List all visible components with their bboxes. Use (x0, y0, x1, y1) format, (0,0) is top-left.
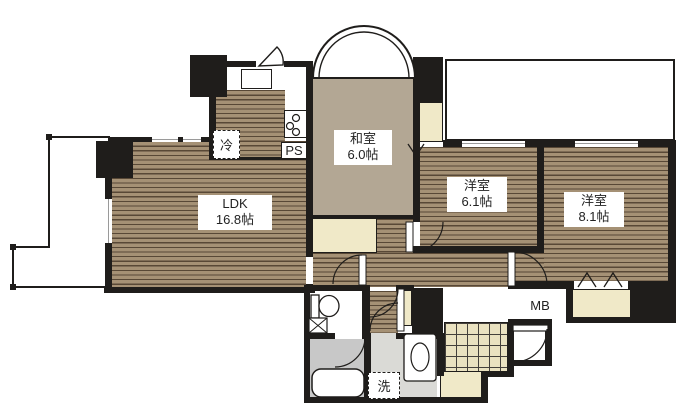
door-arc (413, 222, 443, 252)
door-leaf (508, 252, 515, 286)
burner-icon (293, 115, 300, 122)
folding-door-icon (408, 144, 424, 156)
door-leaf (397, 289, 404, 331)
toilet-bowl (319, 296, 339, 317)
door-arc (514, 252, 547, 285)
plan-overlay (0, 0, 685, 413)
folding-door-icon (604, 273, 622, 287)
bathtub (312, 369, 364, 397)
folding-door-icon (578, 273, 596, 287)
balcony-post (10, 284, 16, 290)
balcony-top-left (13, 137, 110, 287)
balcony-post (46, 134, 52, 140)
vanity (404, 334, 436, 381)
door-leaf (359, 255, 366, 285)
door-leaf (406, 222, 413, 252)
burner-icon (293, 129, 300, 136)
entry-door-leaf (513, 325, 548, 331)
door-arc (370, 303, 398, 331)
bay-window-outer (313, 26, 415, 78)
door-arc (335, 337, 365, 367)
floor-plan: 冷 PS MB 洗 LDK 16.8帖 和室 6.0帖 洋室 6.1帖 洋室 8… (0, 0, 685, 413)
balcony-post (10, 244, 16, 250)
door-arc (333, 255, 362, 284)
burner-icon (287, 123, 294, 130)
kitchen-service-door (259, 47, 283, 66)
toilet-tank (311, 295, 319, 318)
entry-door-arc (514, 329, 547, 362)
